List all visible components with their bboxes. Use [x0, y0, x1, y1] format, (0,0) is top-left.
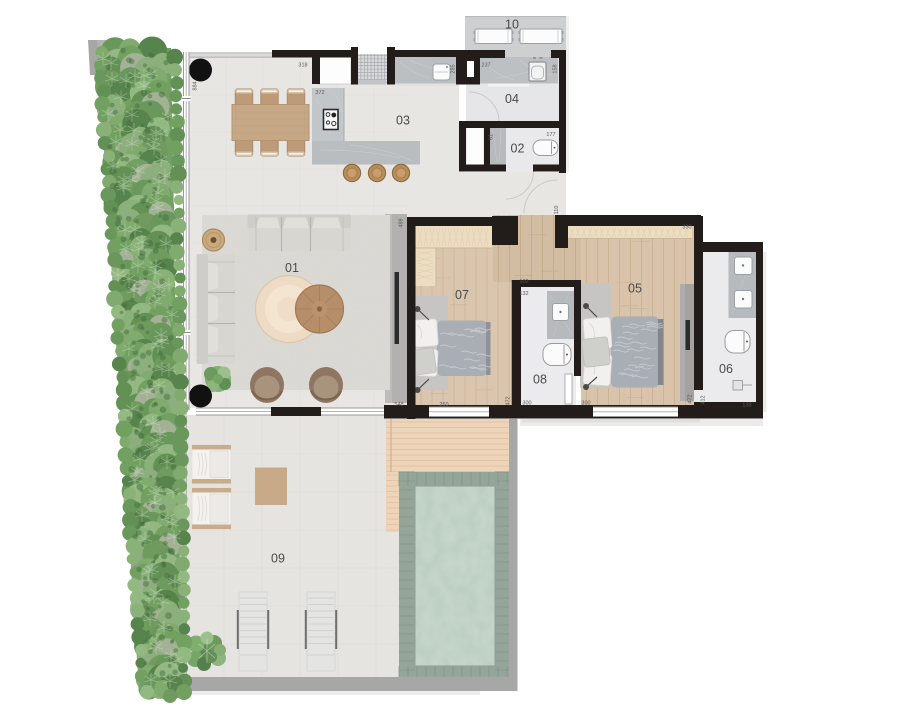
svg-text:318: 318: [298, 63, 307, 69]
svg-text:132: 132: [519, 291, 528, 297]
svg-text:260: 260: [439, 402, 448, 408]
svg-text:08: 08: [533, 373, 547, 387]
svg-text:300: 300: [522, 401, 531, 407]
svg-text:05: 05: [628, 282, 642, 296]
svg-text:61: 61: [489, 134, 495, 140]
svg-text:237: 237: [481, 63, 490, 69]
svg-text:884: 884: [193, 81, 199, 90]
svg-text:372: 372: [315, 90, 324, 96]
svg-text:285: 285: [451, 64, 457, 73]
svg-text:133: 133: [742, 403, 751, 409]
svg-text:04: 04: [505, 92, 519, 106]
svg-text:10: 10: [505, 18, 519, 32]
svg-text:102: 102: [519, 279, 528, 285]
svg-text:489: 489: [399, 218, 405, 227]
svg-text:01: 01: [285, 261, 299, 275]
svg-text:412: 412: [701, 395, 707, 404]
svg-text:300: 300: [581, 401, 590, 407]
svg-text:09: 09: [271, 552, 285, 566]
svg-text:548: 548: [394, 402, 403, 408]
svg-text:07: 07: [455, 288, 469, 302]
svg-text:158: 158: [553, 64, 559, 73]
svg-text:177: 177: [546, 132, 555, 138]
svg-text:03: 03: [396, 114, 410, 128]
svg-text:330: 330: [682, 225, 691, 231]
svg-text:472: 472: [506, 396, 512, 405]
svg-text:472: 472: [688, 394, 694, 403]
svg-text:06: 06: [719, 362, 733, 376]
svg-text:02: 02: [511, 142, 525, 156]
svg-text:110: 110: [554, 206, 560, 215]
